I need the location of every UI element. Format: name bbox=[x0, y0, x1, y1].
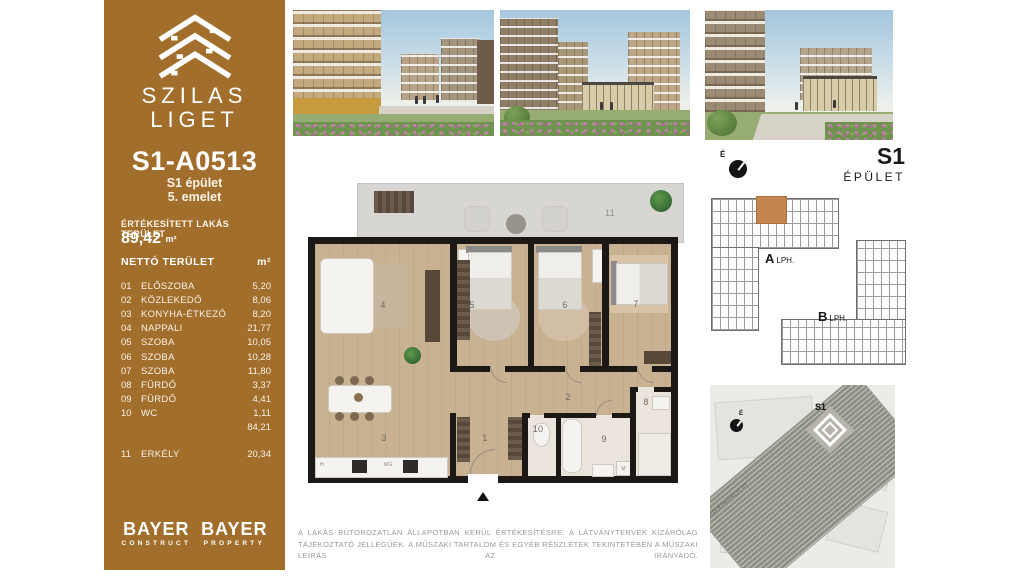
kitchen-counter bbox=[315, 457, 448, 478]
entrance-arrow-icon bbox=[477, 492, 489, 501]
brand-logo: SZILAS LIGET bbox=[104, 12, 285, 132]
bush bbox=[707, 110, 737, 136]
person bbox=[795, 102, 798, 110]
disclaimer-text: A LAKÁS BÚTOROZATLAN ÁLLAPOTBAN KERÜL ÉR… bbox=[298, 527, 698, 562]
room-number-7: 7 bbox=[633, 299, 638, 309]
shower bbox=[638, 433, 671, 476]
staircase-b-label: BLPH. bbox=[818, 309, 847, 324]
table-row: 05SZOBA10,05 bbox=[121, 336, 271, 350]
table-row: 09FÜRDŐ4,41 bbox=[121, 393, 271, 407]
wall bbox=[602, 244, 609, 366]
bayer-property-logo: BAYER PROPERTY bbox=[201, 520, 267, 547]
site-map: S1 É SZENTMIHÁLYI ÚT bbox=[710, 385, 895, 568]
wall bbox=[522, 413, 528, 476]
room-number-11: 11 bbox=[605, 208, 615, 218]
dishwasher-label: MG bbox=[384, 462, 392, 468]
brochure-page: SZILAS LIGET S1-A0513 S1 épület 5. emele… bbox=[0, 0, 1024, 576]
building-dark bbox=[477, 40, 494, 104]
lounge-chair bbox=[464, 206, 490, 232]
wardrobe bbox=[457, 260, 470, 340]
wall bbox=[630, 387, 636, 476]
wall bbox=[612, 413, 630, 418]
wardrobe bbox=[508, 417, 522, 460]
table-row: 08FÜRDŐ3,37 bbox=[121, 378, 271, 392]
staircase-a-label: ALPH. bbox=[765, 251, 794, 266]
lounge-chair bbox=[542, 206, 568, 232]
table-header: NETTÓ TERÜLETm² bbox=[121, 256, 271, 268]
wall bbox=[654, 387, 671, 392]
wall bbox=[528, 244, 534, 372]
table-centerpiece bbox=[354, 393, 363, 402]
hob-label: H bbox=[320, 462, 324, 468]
wall bbox=[556, 418, 561, 476]
bayer-construct-logo: BAYER CONSTRUCT bbox=[122, 520, 192, 547]
person bbox=[833, 100, 836, 108]
wall bbox=[450, 413, 456, 476]
unit-subtitle: S1 épület 5. emelet bbox=[104, 176, 285, 205]
table-row-balcony: 11ERKÉLY20,34 bbox=[121, 447, 271, 461]
chair bbox=[365, 376, 374, 385]
building bbox=[401, 54, 439, 102]
media-cabinet bbox=[425, 270, 440, 342]
entrance-opening bbox=[468, 474, 498, 485]
unit-id: S1-A0513 bbox=[104, 146, 285, 177]
table-row: 01ELŐSZOBA5,20 bbox=[121, 279, 271, 293]
site-map-s1-label: S1 bbox=[815, 402, 826, 412]
plant bbox=[404, 347, 421, 364]
roof-logo-icon bbox=[149, 12, 241, 80]
building-plan-title: S1 ÉPÜLET bbox=[810, 146, 905, 184]
wall bbox=[580, 366, 637, 372]
sold-area-value: 89,42 m² bbox=[121, 230, 177, 248]
room-number-8: 8 bbox=[643, 397, 648, 407]
flower-bed bbox=[500, 120, 690, 136]
bathtub bbox=[562, 419, 582, 473]
building bbox=[705, 10, 765, 128]
developer-logos: BAYER CONSTRUCT BAYER PROPERTY bbox=[104, 520, 285, 547]
sink-unit bbox=[403, 460, 418, 473]
wall bbox=[450, 366, 490, 372]
table-subtotal-row: 84,21 bbox=[121, 421, 271, 435]
compass-icon bbox=[729, 160, 747, 178]
wall bbox=[505, 366, 565, 372]
balcony-plant bbox=[650, 190, 672, 212]
building bbox=[441, 38, 479, 102]
map-north-label: É bbox=[739, 411, 743, 417]
building bbox=[500, 18, 558, 118]
brand-name: SZILAS LIGET bbox=[104, 84, 285, 132]
wall bbox=[652, 366, 671, 372]
washing-machine: M bbox=[616, 461, 631, 476]
highlighted-unit bbox=[757, 197, 786, 223]
person bbox=[423, 96, 426, 104]
chair bbox=[365, 412, 374, 421]
room-number-6: 6 bbox=[562, 300, 567, 310]
person bbox=[415, 96, 418, 104]
chair bbox=[335, 376, 344, 385]
table-spacer bbox=[121, 435, 271, 447]
unit-building: S1 épület bbox=[104, 176, 285, 190]
washbasin bbox=[652, 396, 670, 410]
stove bbox=[352, 460, 367, 473]
render-photo-promenade bbox=[705, 10, 893, 140]
table-row: 07SZOBA11,80 bbox=[121, 364, 271, 378]
sidebar: SZILAS LIGET S1-A0513 S1 épület 5. emele… bbox=[104, 0, 285, 570]
wall bbox=[522, 413, 530, 418]
room-number-2: 2 bbox=[565, 392, 570, 402]
pavilion bbox=[582, 82, 654, 113]
room-number-1: 1 bbox=[482, 433, 487, 443]
table-row: 04NAPPALI21,77 bbox=[121, 322, 271, 336]
table-row: 02KÖZLEKEDŐ8,06 bbox=[121, 293, 271, 307]
map-compass-icon bbox=[730, 419, 743, 432]
wall bbox=[630, 387, 638, 392]
wall bbox=[450, 244, 457, 366]
room-number-9: 9 bbox=[601, 434, 606, 444]
flower-bed bbox=[825, 122, 893, 140]
balcony-bench bbox=[374, 191, 414, 213]
building-wing-a-vertical bbox=[712, 248, 758, 330]
washbasin bbox=[592, 464, 614, 477]
bed bbox=[616, 263, 668, 305]
table-row: 06SZOBA10,28 bbox=[121, 350, 271, 364]
room-number-5: 5 bbox=[469, 300, 474, 310]
table-row: 10WC1,11 bbox=[121, 407, 271, 421]
person bbox=[436, 95, 439, 103]
wall bbox=[544, 413, 596, 418]
room-number-10: 10 bbox=[533, 424, 544, 434]
render-photo-courtyard bbox=[293, 10, 494, 136]
person bbox=[600, 102, 603, 110]
sofa bbox=[320, 258, 374, 334]
apartment-floor-plan: H MG M bbox=[300, 165, 696, 515]
dresser bbox=[644, 351, 671, 364]
balcony-table bbox=[506, 214, 526, 234]
person bbox=[610, 102, 613, 110]
table-row: 03KONYHA-ÉTKEZŐ8,20 bbox=[121, 307, 271, 321]
unit-floor: 5. emelet bbox=[104, 190, 285, 204]
pavilion bbox=[803, 76, 877, 111]
building-wing-b-horizontal bbox=[782, 320, 905, 364]
chair bbox=[350, 376, 359, 385]
wardrobe bbox=[457, 417, 470, 462]
net-area-table: NETTÓ TERÜLETm² 01ELŐSZOBA5,20 02KÖZLEKE… bbox=[121, 256, 271, 461]
render-photo-park bbox=[500, 10, 690, 136]
room-number-4: 4 bbox=[380, 300, 385, 310]
balcony bbox=[357, 183, 684, 243]
bed bbox=[538, 252, 582, 310]
chair bbox=[335, 412, 344, 421]
room-number-3: 3 bbox=[381, 433, 386, 443]
wardrobe bbox=[589, 312, 601, 366]
north-label: É bbox=[720, 150, 725, 159]
chair bbox=[350, 412, 359, 421]
flower-bed bbox=[293, 122, 494, 136]
